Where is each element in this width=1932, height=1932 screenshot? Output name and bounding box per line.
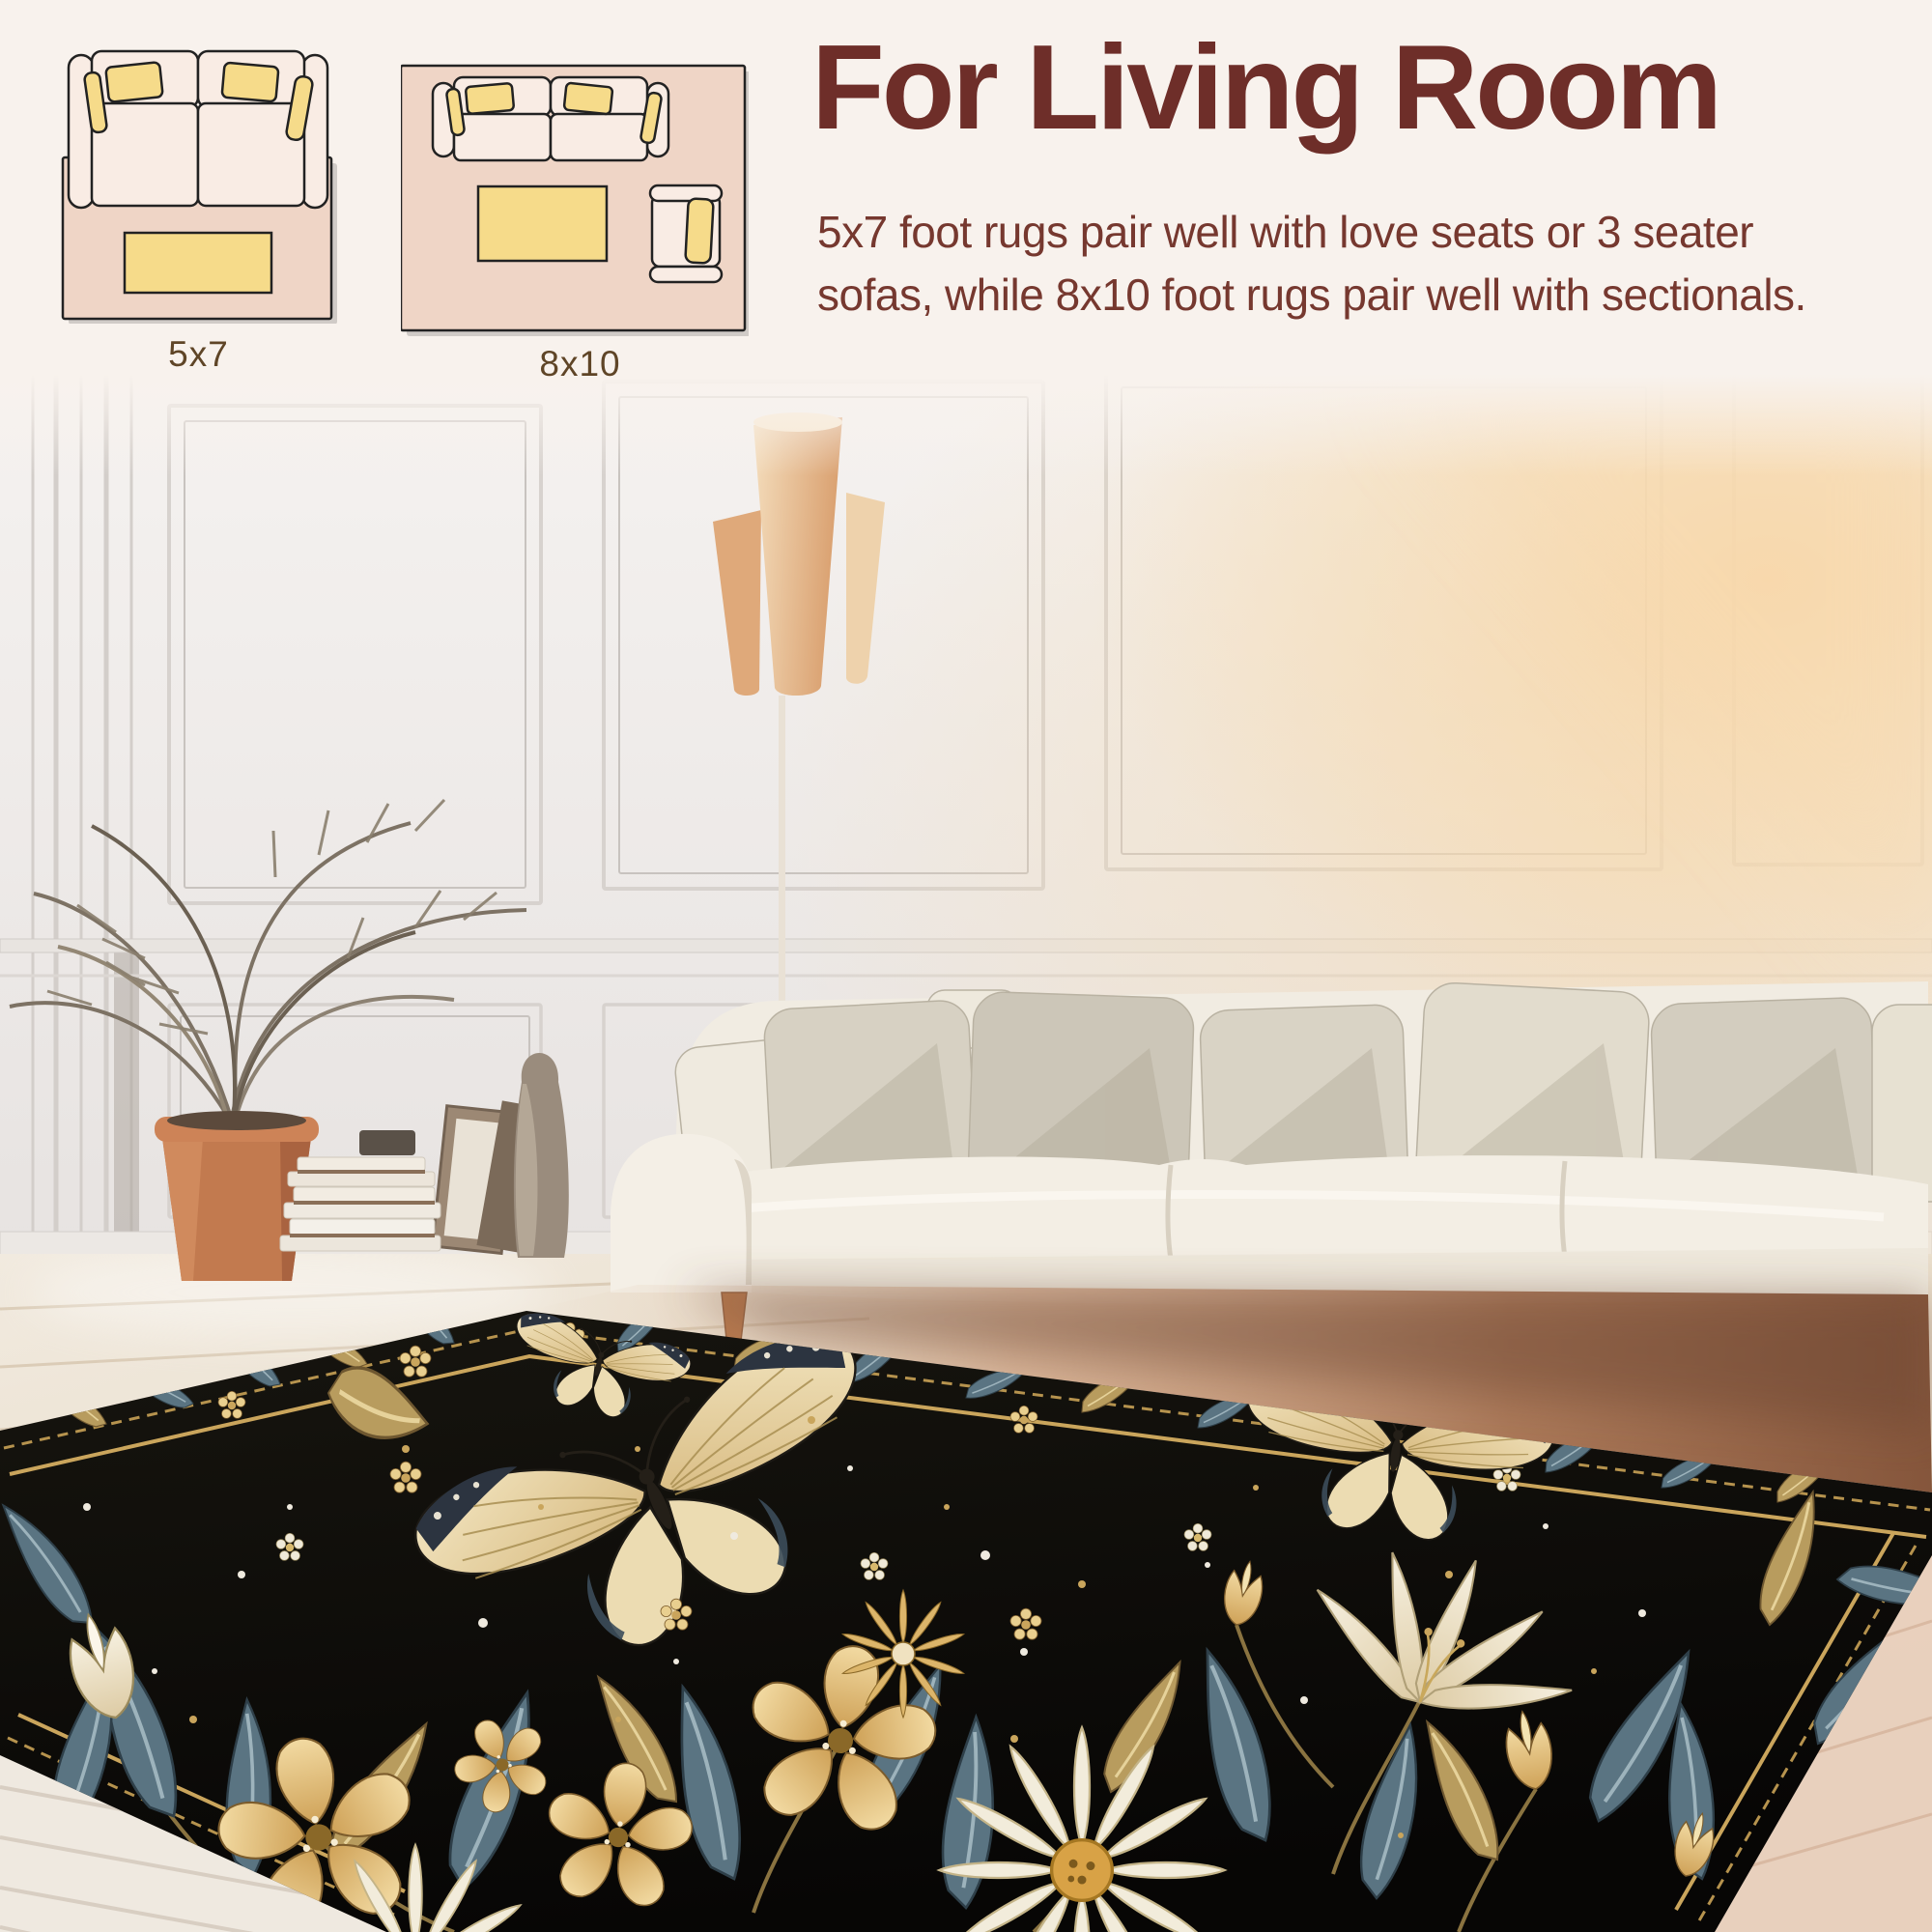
- header: 5x7 8x10 For Living Room 5x7 foot rugs p…: [0, 0, 1932, 372]
- header-photo-fade: [0, 365, 1932, 476]
- diagram-armchair: [650, 185, 722, 282]
- diagram-coffee-table: [478, 186, 607, 261]
- rug-size-diagram-8x10: [401, 48, 749, 338]
- lamp-pole: [779, 696, 785, 1053]
- diagram-coffee-table: [125, 233, 271, 293]
- rug-size-label-8x10: 8x10: [515, 344, 645, 384]
- wall-groove-shadow: [114, 947, 139, 1246]
- page-description: 5x7 foot rugs pair well with love seats …: [817, 201, 1875, 327]
- living-room-photo: [0, 367, 1932, 1932]
- rug-size-label-5x7: 5x7: [143, 334, 254, 375]
- sofa-armrest: [611, 1134, 752, 1293]
- rug-size-diagram-5x7: [53, 43, 343, 324]
- product-image: 5x7 8x10 For Living Room 5x7 foot rugs p…: [0, 0, 1932, 1932]
- page-title: For Living Room: [811, 25, 1913, 151]
